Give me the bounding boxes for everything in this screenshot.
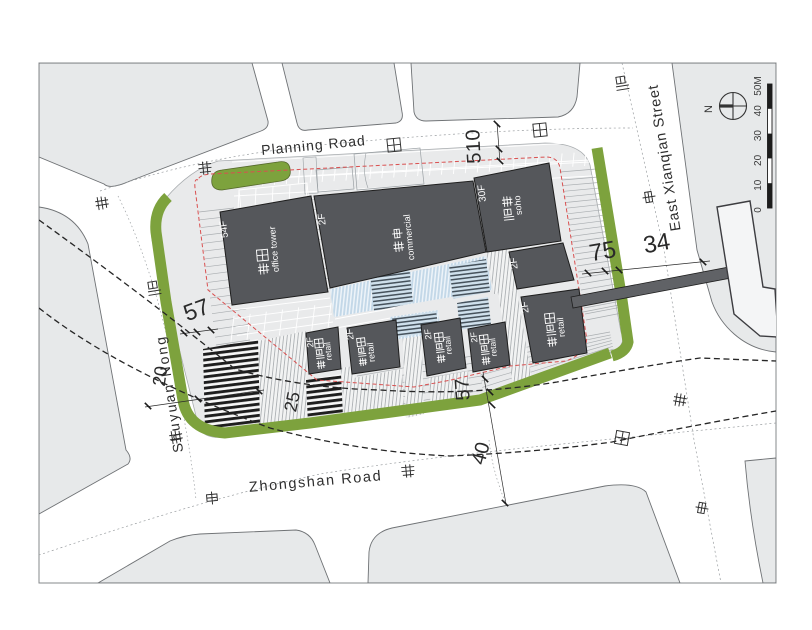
svg-text:2F: 2F [422, 328, 433, 340]
svg-text:10: 10 [753, 179, 764, 191]
svg-text:2F: 2F [344, 328, 356, 340]
svg-text:510: 510 [462, 128, 486, 164]
svg-text:20: 20 [753, 154, 764, 166]
svg-text:2F: 2F [316, 213, 328, 226]
svg-text:25: 25 [280, 390, 304, 414]
svg-text:2F: 2F [304, 336, 315, 348]
svg-text:2F: 2F [519, 301, 531, 314]
svg-text:30: 30 [753, 130, 764, 142]
svg-text:75: 75 [587, 236, 618, 267]
svg-text:40: 40 [753, 105, 764, 117]
svg-text:retail: retail [322, 342, 334, 361]
svg-text:30F: 30F [476, 184, 489, 202]
svg-text:retail: retail [365, 342, 377, 362]
svg-text:retail: retail [555, 317, 567, 337]
svg-text:50M: 50M [753, 76, 764, 95]
svg-text:retail: retail [487, 338, 499, 357]
svg-text:N: N [703, 105, 715, 113]
svg-text:soho: soho [512, 195, 524, 215]
svg-text:retail: retail [442, 336, 454, 355]
svg-text:2F: 2F [468, 331, 479, 343]
svg-text:57: 57 [451, 378, 474, 402]
svg-text:34: 34 [641, 228, 672, 259]
svg-text:2F: 2F [508, 257, 520, 270]
svg-text:0: 0 [753, 207, 764, 213]
svg-text:54F: 54F [218, 220, 231, 238]
